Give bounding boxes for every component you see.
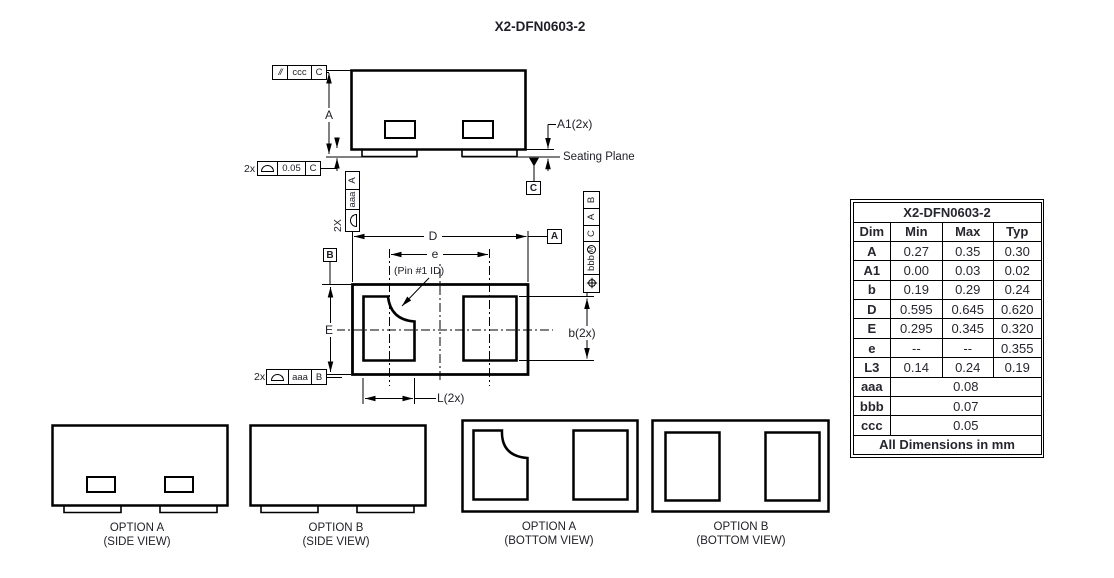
table-header-row: Dim Min Max Typ — [853, 222, 1041, 241]
table-title: X2-DFN0603-2 — [853, 202, 1041, 222]
side-view-linework — [317, 71, 560, 182]
parallelism-icon: // — [273, 66, 288, 79]
page-title: X2-DFN0603-2 — [440, 20, 640, 34]
datum-c-box: C — [526, 181, 541, 195]
optA-side-caption: OPTION A (SIDE VIEW) — [67, 522, 207, 549]
package-drawing-page: X2-DFN0603-2 A A1(2x) Seating Plane D e … — [0, 0, 1114, 578]
dim-label-A1: A1(2x) — [557, 117, 592, 131]
table-span-row: bbb 0.07 — [853, 397, 1041, 416]
dimensions-table: X2-DFN0603-2 Dim Min Max Typ A 0.27 0.35… — [850, 199, 1044, 458]
fcf-feet-prefix: 2X — [331, 219, 345, 232]
fcf-position: bbb M C A B — [583, 191, 600, 293]
dim-label-e: e — [427, 247, 443, 261]
seating-plane-label: Seating Plane — [563, 150, 635, 164]
dim-label-E: E — [321, 323, 337, 337]
table-row: A1 0.00 0.03 0.02 — [853, 261, 1041, 280]
profile-of-surface-icon — [258, 162, 278, 175]
dim-label-D: D — [424, 229, 442, 243]
optA-bottom-body — [463, 421, 638, 512]
table-footer: All Dimensions in mm — [853, 435, 1041, 454]
table-row: E 0.295 0.345 0.320 — [853, 319, 1041, 338]
bottom-view-linework — [322, 231, 594, 404]
fcf-profile-feet: aaa A — [345, 171, 360, 232]
flank-window-right — [463, 121, 493, 138]
optB-bottom-caption: OPTION B (BOTTOM VIEW) — [671, 521, 811, 548]
fcf-profile-seating: 0.05 C — [257, 161, 321, 176]
fcf-seating-prefix: 2x — [244, 162, 255, 176]
centerlines — [336, 249, 553, 386]
fcf-parallelism: // ccc C — [272, 65, 327, 80]
datum-a-box: A — [547, 229, 562, 244]
pin1-leader — [402, 278, 429, 306]
dim-label-L: L(2x) — [437, 391, 464, 405]
table-span-row: ccc 0.05 — [853, 416, 1041, 435]
optA-side-body — [53, 426, 228, 506]
table-row: D 0.595 0.645 0.620 — [853, 300, 1041, 319]
profile-of-surface-icon — [267, 370, 289, 384]
optA-pad-notched — [474, 431, 528, 500]
fcf-pads-prefix: 2x — [254, 370, 265, 384]
table-row: e -- -- 0.355 — [853, 338, 1041, 357]
package-body-side — [352, 71, 526, 150]
dim-label-A: A — [321, 108, 337, 122]
flank-window-left — [385, 121, 415, 138]
pin1-label: (Pin #1 ID) — [394, 264, 444, 278]
optB-bottom-body — [653, 421, 829, 512]
position-icon — [584, 274, 599, 292]
datum-b-box: B — [323, 248, 337, 262]
datum-c-triangle — [529, 158, 539, 167]
optB-side-caption: OPTION B (SIDE VIEW) — [266, 522, 406, 549]
table-row: b 0.19 0.29 0.24 — [853, 280, 1041, 299]
table-row: A 0.27 0.35 0.30 — [853, 241, 1041, 260]
optA-bottom-caption: OPTION A (BOTTOM VIEW) — [479, 521, 619, 548]
profile-of-surface-icon — [346, 209, 359, 231]
optB-side-body — [251, 426, 426, 506]
option-views-linework — [53, 421, 829, 513]
table-row: L3 0.14 0.24 0.19 — [853, 358, 1041, 377]
table-span-row: aaa 0.08 — [853, 377, 1041, 396]
dim-label-b: b(2x) — [564, 326, 600, 340]
fcf-profile-pads: aaa B — [266, 369, 327, 385]
material-modifier-icon: M — [587, 245, 596, 254]
